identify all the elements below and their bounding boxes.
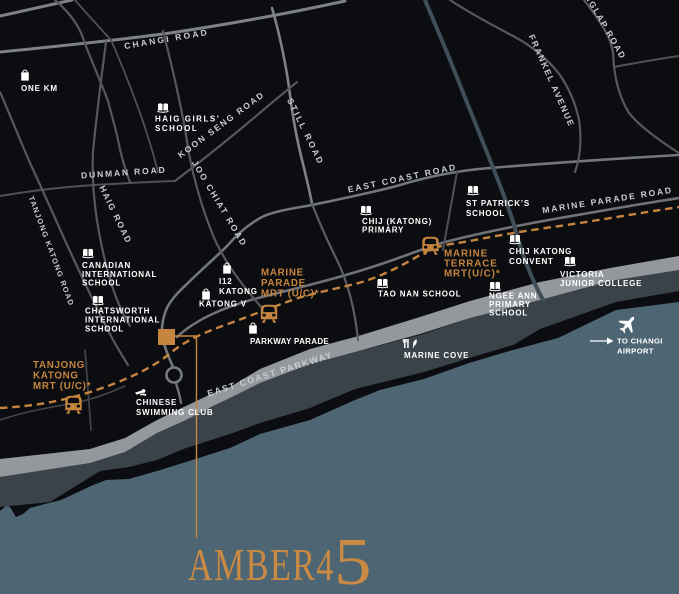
svg-text:MARINE: MARINE	[261, 268, 304, 279]
svg-text:KATONG: KATONG	[33, 371, 79, 382]
svg-text:KATONG: KATONG	[219, 287, 258, 296]
svg-text:ST PATRICK’S: ST PATRICK’S	[466, 199, 530, 208]
svg-text:MRT (U/C)*: MRT (U/C)*	[261, 289, 319, 300]
svg-text:TANJONG: TANJONG	[33, 360, 85, 371]
svg-text:CONVENT: CONVENT	[509, 257, 554, 266]
svg-text:SWIMMING CLUB: SWIMMING CLUB	[136, 408, 214, 417]
svg-text:SCHOOL: SCHOOL	[82, 279, 121, 288]
svg-text:SCHOOL: SCHOOL	[85, 325, 124, 334]
svg-text:MARINE COVE: MARINE COVE	[404, 351, 469, 360]
svg-text:SCHOOL: SCHOOL	[489, 309, 528, 318]
svg-text:PRIMARY: PRIMARY	[362, 226, 404, 235]
svg-text:PARKWAY PARADE: PARKWAY PARADE	[250, 337, 329, 346]
svg-text:CHIJ KATONG: CHIJ KATONG	[509, 247, 572, 256]
svg-text:TO CHANGI: TO CHANGI	[617, 337, 663, 346]
svg-text:AMBER4: AMBER4	[188, 539, 335, 590]
svg-text:AIRPORT: AIRPORT	[617, 347, 654, 356]
svg-text:5: 5	[334, 526, 372, 594]
svg-text:VICTORIA: VICTORIA	[560, 270, 604, 279]
svg-text:HAIG GIRLS’: HAIG GIRLS’	[155, 115, 220, 124]
svg-text:CHATSWORTH: CHATSWORTH	[85, 307, 150, 316]
svg-text:MRT (U/C)*: MRT (U/C)*	[33, 381, 91, 392]
svg-text:KATONG V: KATONG V	[199, 300, 247, 309]
svg-text:INTERNATIONAL: INTERNATIONAL	[82, 270, 157, 279]
svg-text:CHINESE: CHINESE	[136, 398, 177, 407]
svg-text:SCHOOL: SCHOOL	[155, 124, 198, 133]
svg-text:MRT(U/C)*: MRT(U/C)*	[444, 269, 501, 280]
svg-text:JUNIOR COLLEGE: JUNIOR COLLEGE	[560, 279, 642, 288]
svg-text:ONE KM: ONE KM	[21, 84, 58, 93]
svg-text:PARADE: PARADE	[261, 278, 306, 289]
svg-text:SCHOOL: SCHOOL	[466, 209, 505, 218]
svg-text:CANADIAN: CANADIAN	[82, 261, 131, 270]
svg-text:I12: I12	[219, 277, 233, 286]
svg-text:INTERNATIONAL: INTERNATIONAL	[85, 316, 160, 325]
svg-text:TAO NAN SCHOOL: TAO NAN SCHOOL	[378, 290, 462, 299]
